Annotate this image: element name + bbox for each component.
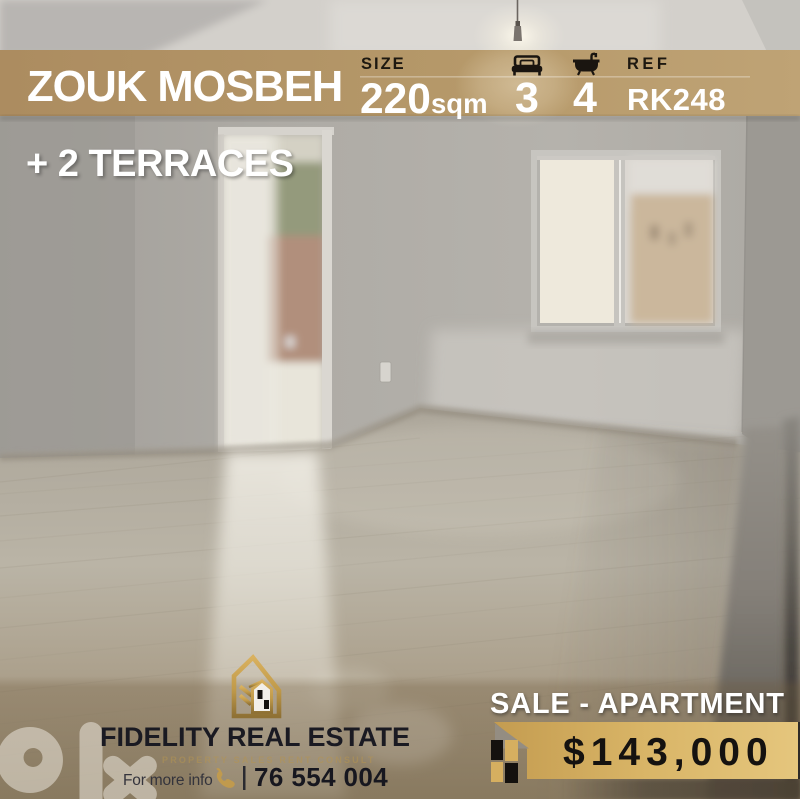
svg-text:sqm: sqm <box>431 88 488 119</box>
svg-text:3: 3 <box>515 74 539 122</box>
svg-text:SIZE: SIZE <box>361 55 406 73</box>
svg-text:RK248: RK248 <box>627 82 726 117</box>
svg-text:+ 2 TERRACES: + 2 TERRACES <box>26 143 293 185</box>
svg-text:SALE - APARTMENT: SALE - APARTMENT <box>490 688 785 720</box>
svg-text:4: 4 <box>573 74 597 122</box>
svg-text:REF: REF <box>627 55 671 73</box>
svg-text:ZOUK MOSBEH: ZOUK MOSBEH <box>27 63 342 111</box>
svg-text:76 554 004: 76 554 004 <box>254 762 388 792</box>
svg-text:$143,000: $143,000 <box>563 731 774 774</box>
svg-text:For more info: For more info <box>123 772 213 789</box>
svg-text:FIDELITY REAL ESTATE: FIDELITY REAL ESTATE <box>100 722 410 752</box>
svg-text:220: 220 <box>360 76 431 123</box>
